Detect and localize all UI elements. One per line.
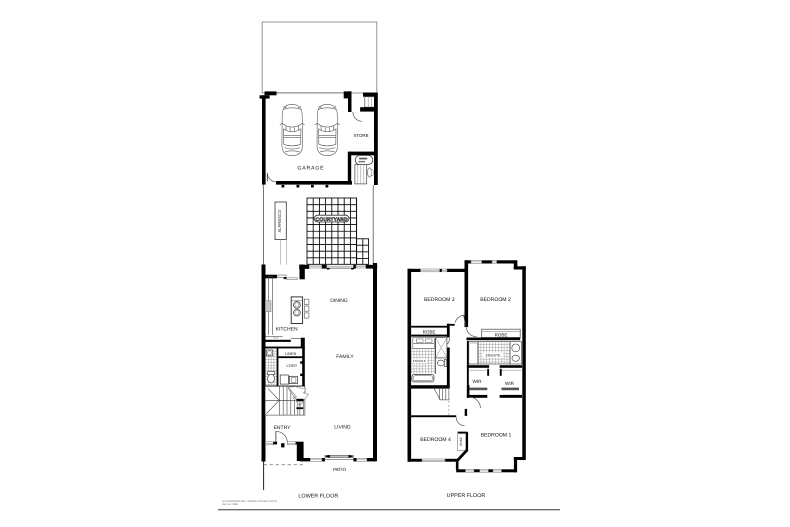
svg-text:GARAGE: GARAGE [297,165,324,171]
svg-text:BEDROOM 1: BEDROOM 1 [481,433,512,439]
svg-text:PTY: PTY [273,337,278,340]
svg-text:L’DRY: L’DRY [287,364,298,368]
svg-text:DINING: DINING [330,298,348,304]
svg-text:PATIO: PATIO [333,467,347,472]
svg-text:ENTRY: ENTRY [274,425,292,431]
svg-text:ENSUITE: ENSUITE [486,354,501,358]
svg-text:Ref. No 17864: Ref. No 17864 [223,503,239,506]
svg-text:BEDROOM 2: BEDROOM 2 [480,297,511,303]
svg-text:WIR: WIR [505,381,515,386]
svg-text:ALFRESCO: ALFRESCO [277,209,282,232]
svg-text:FAMILY: FAMILY [336,354,354,360]
svg-text:LINEN: LINEN [285,352,296,356]
svg-text:ROBE: ROBE [495,332,508,337]
svg-text:BEDROOM 4: BEDROOM 4 [420,437,451,443]
svg-text:BEDROOM 3: BEDROOM 3 [424,297,455,303]
svg-text:ROBE: ROBE [459,437,463,446]
svg-text:LIVING: LIVING [334,424,351,430]
svg-text:UPPER FLOOR: UPPER FLOOR [447,493,486,499]
svg-text:STORE: STORE [353,133,368,138]
svg-text:ROBE: ROBE [423,329,436,334]
svg-text:KITCHEN: KITCHEN [276,326,298,332]
svg-text:COURTYARD: COURTYARD [316,217,348,223]
svg-text:LOWER FLOOR: LOWER FLOOR [298,494,338,500]
svg-text:ENSUITE: ENSUITE [413,359,426,363]
svg-text:WIR: WIR [472,379,482,384]
